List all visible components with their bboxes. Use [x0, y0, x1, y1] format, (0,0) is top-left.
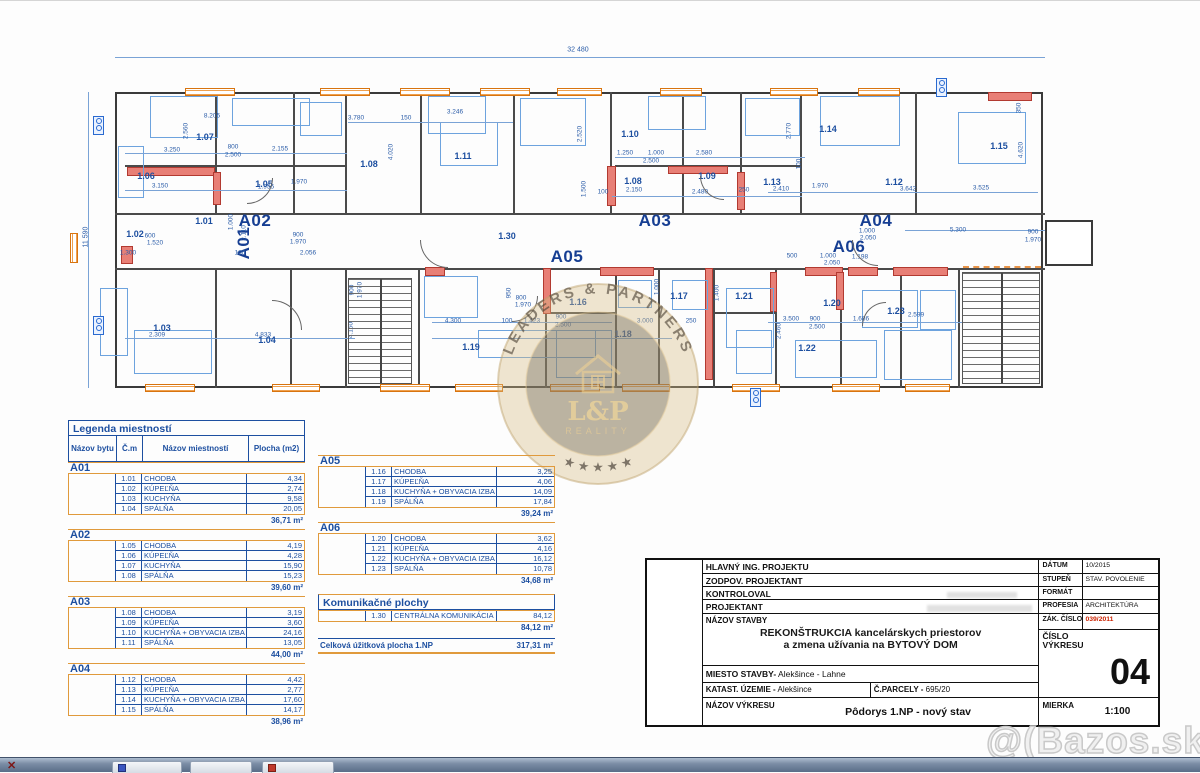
comm-total: 84,12 m² — [318, 622, 555, 636]
legend-cell: 3,19 — [247, 608, 304, 617]
legend-room-row: 1.12CHODBA4,42 — [116, 675, 304, 685]
dimension-label: 2.770 — [786, 123, 793, 139]
legend-cell: 1.22 — [366, 554, 392, 563]
tb-stupen-row: STUPEŇSTAV. POVOLENIE — [1039, 574, 1158, 587]
window-marker — [380, 384, 430, 392]
staircase — [962, 272, 1040, 384]
room-number-label: 1.15 — [990, 141, 1008, 151]
comm-row-name: CENTRÁLNA KOMUNIKÁCIA — [392, 611, 497, 621]
legend-cell: 1.21 — [366, 544, 392, 553]
legend-cell: SPÁLŇA — [142, 638, 247, 648]
legend-room-row: 1.03KUCHYŇA9,58 — [116, 494, 304, 504]
load-bearing-wall — [425, 267, 445, 276]
legend-cell: 15,90 — [247, 561, 304, 570]
legend-cell: KÚPEĽŇA — [142, 618, 247, 627]
apartment-group-label: A04 — [68, 663, 305, 674]
legend-cell: 17,60 — [247, 695, 304, 704]
legend-cell: 1.17 — [366, 477, 392, 486]
legend-cell: 14,17 — [247, 705, 304, 715]
legend-title: Legenda miestností — [68, 420, 305, 436]
room-number-label: 1.08 — [624, 176, 642, 186]
legend-groups-a01-a04: A011.01CHODBA4,341.02KÚPEĽŇA2,741.03KUCH… — [68, 462, 305, 730]
dimension-label: 3.780 — [348, 115, 364, 122]
room-number-label: 1.14 — [819, 124, 837, 134]
vent-circle — [96, 118, 102, 124]
apartment-group-label: A02 — [68, 529, 305, 540]
window-marker — [770, 88, 818, 96]
tb-parcely-label: Č.PARCELY - — [874, 685, 924, 694]
legend-cell: 1.10 — [116, 628, 142, 637]
legend-room-row: 1.20CHODBA3,62 — [366, 534, 554, 544]
grand-total-label: Celková úžitková plocha 1.NP — [320, 641, 433, 650]
window-marker — [557, 88, 602, 96]
apartment-label: A03 — [639, 211, 672, 231]
legend-cell: 20,05 — [247, 504, 304, 514]
vent-icon — [750, 388, 761, 407]
legend-cell: 9,58 — [247, 494, 304, 503]
legend-room-row: 1.07KUCHYŇA15,90 — [116, 561, 304, 571]
taskbar-button-1[interactable] — [112, 761, 182, 773]
group-total-area: 39,24 m² — [318, 508, 555, 522]
legend-cell: 1.09 — [116, 618, 142, 627]
legend-room-row: 1.17KÚPEĽŇA4,06 — [366, 477, 554, 487]
dimension-label: 3.246 — [447, 109, 463, 116]
dimension-label: 4.620 — [1018, 142, 1025, 158]
legend-cell: 1.03 — [116, 494, 142, 503]
legend-room-row: 1.06KÚPEĽŇA4,28 — [116, 551, 304, 561]
legend-header-nazov-miestnosti: Názov miestností — [143, 436, 249, 461]
comm-title: Komunikačné plochy — [318, 594, 555, 610]
legend-groups-a05-a06: A051.16CHODBA3,251.17KÚPEĽŇA4,061.18KUCH… — [318, 455, 555, 589]
furniture-item — [648, 96, 706, 130]
legend-cell: 16,12 — [497, 554, 554, 563]
dimension-label: 4.020 — [388, 144, 395, 160]
legend-cell: KÚPEĽŇA — [392, 477, 497, 486]
tb-row-zodpov: ZODPOV. PROJEKTANT — [703, 574, 1039, 587]
dimension-label: 150 — [401, 115, 412, 122]
legend-room-row: 1.10KUCHYŇA + OBYVACIA IZBA24,16 — [116, 628, 304, 638]
legend-cell: SPÁLŇA — [392, 564, 497, 574]
legend-cell: KUCHYŇA + OBYVACIA IZBA — [142, 628, 247, 637]
dimension-line — [612, 196, 802, 197]
dimension-label: 4.300 — [445, 318, 461, 325]
dimension-label: 1.000 — [859, 228, 875, 235]
furniture-item — [232, 98, 310, 126]
dimension-label: 100 — [598, 189, 609, 196]
legend-room-row: 1.05CHODBA4,19 — [116, 541, 304, 551]
legend-room-row: 1.08SPÁLŇA15,23 — [116, 571, 304, 581]
drawing-number: 04 — [1110, 651, 1150, 693]
dimension-label: 4.833 — [255, 332, 271, 339]
dimension-label: 2.050 — [824, 260, 840, 267]
entrance-annex — [1045, 220, 1093, 266]
window-marker — [400, 88, 450, 96]
window-marker — [480, 88, 530, 96]
app-icon-red — [268, 764, 276, 772]
group-total-area: 38,96 m² — [68, 716, 305, 730]
group-total-area: 44,00 m² — [68, 649, 305, 663]
legend-room-row: 1.08CHODBA3,19 — [116, 608, 304, 618]
furniture-item — [134, 330, 212, 374]
legend-header-row: Názov bytu Č.m Názov miestností Plocha (… — [68, 436, 305, 462]
dimension-line — [348, 122, 513, 123]
dimension-label: 900 — [810, 316, 821, 323]
window-marker — [70, 233, 78, 263]
legend-room-row: 1.22KUCHYŇA + OBYVACIA IZBA16,12 — [366, 554, 554, 564]
grand-total-row: Celková úžitková plocha 1.NP 317,31 m² — [318, 638, 555, 654]
comm-row: 1.30 CENTRÁLNA KOMUNIKÁCIA 84,12 — [366, 611, 554, 621]
legend-header-nazov-bytu: Názov bytu — [69, 436, 117, 461]
window-marker — [858, 88, 900, 96]
furniture-item — [424, 276, 478, 318]
legend-cell: CHODBA — [142, 541, 247, 550]
legend-table-left: Legenda miestností Názov bytu Č.m Názov … — [68, 420, 305, 730]
vent-icon — [936, 78, 947, 97]
legend-room-row: 1.23SPÁLŇA10,78 — [366, 564, 554, 574]
dimension-label: 800 — [228, 144, 239, 151]
tb-parcely-value: 695/20 — [923, 685, 950, 694]
load-bearing-wall — [213, 172, 221, 205]
legend-room-row: 1.01CHODBA4,34 — [116, 474, 304, 484]
tb-miesto-label: MIESTO STAVBY- — [706, 669, 776, 679]
legend-room-row: 1.11SPÁLŇA13,05 — [116, 638, 304, 648]
legend-cell: 3,60 — [247, 618, 304, 627]
legend-cell: KUCHYŇA + OBYVACIA IZBA — [392, 487, 497, 496]
legend-cell: 3,25 — [497, 467, 554, 476]
room-number-label: 1.01 — [195, 216, 213, 226]
dimension-label: 3.250 — [164, 147, 180, 154]
dimension-label: 350 — [1016, 103, 1023, 114]
legend-cell: 1.08 — [116, 571, 142, 581]
dimension-label: 1.000 — [228, 214, 235, 230]
dimension-label: 1.300 — [120, 250, 136, 257]
wall-segment — [513, 92, 515, 213]
legend-cell: 2,74 — [247, 484, 304, 493]
dimension-label: 2.599 — [908, 312, 924, 319]
staircase-rail — [380, 279, 382, 383]
apartment-group-label: A05 — [318, 455, 555, 466]
furniture-item — [300, 102, 342, 136]
comm-box: 1.30 CENTRÁLNA KOMUNIKÁCIA 84,12 — [318, 610, 555, 622]
legend-cell: 1.07 — [116, 561, 142, 570]
room-number-label: 1.21 — [735, 291, 753, 301]
legend-cell: 14,09 — [497, 487, 554, 496]
window-marker — [272, 384, 320, 392]
legend-cell: 1.15 — [116, 705, 142, 715]
legend-group-a01: A011.01CHODBA4,341.02KÚPEĽŇA2,741.03KUCH… — [68, 462, 305, 529]
app-icon-blue — [118, 764, 126, 772]
wall-segment — [915, 92, 917, 213]
load-bearing-wall — [988, 92, 1032, 101]
legend-cell: CHODBA — [392, 534, 497, 543]
tb-miesto-stavby: MIESTO STAVBY- Alekšince - Lahne — [703, 666, 1039, 683]
taskbar-close-icon[interactable]: ✕ — [7, 759, 16, 772]
legend-cell: KUCHYŇA + OBYVACIA IZBA — [392, 554, 497, 563]
dimension-label: 1.970 — [291, 179, 307, 186]
legend-group-box: 1.05CHODBA4,191.06KÚPEĽŇA4,281.07KUCHYŇA… — [68, 540, 305, 582]
tb-nazov-stavby: NÁZOV STAVBY REKONŠTRUKCIA kancelárskych… — [703, 614, 1039, 666]
legend-cell: CHODBA — [142, 675, 247, 684]
apartment-label: A05 — [551, 247, 584, 267]
apartment-group-label: A06 — [318, 522, 555, 533]
dimension-label: 2.155 — [272, 146, 288, 153]
legend-cell: CHODBA — [142, 474, 247, 483]
bazos-watermark: @(Bazos.sk — [986, 720, 1200, 762]
tb-row-hlavny: HLAVNÝ ING. PROJEKTU — [703, 560, 1039, 574]
dimension-label: 250 — [739, 187, 750, 194]
room-number-label: 1.22 — [798, 343, 816, 353]
legend-cell: 1.08 — [116, 608, 142, 617]
legend-room-row: 1.13KÚPEĽŇA2,77 — [116, 685, 304, 695]
legend-header-cm: Č.m — [117, 436, 143, 461]
tb-nazov-stavby-label: NÁZOV STAVBY — [703, 614, 1039, 627]
legend-group-box: 1.01CHODBA4,341.02KÚPEĽŇA2,741.03KUCHYŇA… — [68, 473, 305, 515]
staircase — [348, 278, 412, 384]
load-bearing-wall — [600, 267, 654, 276]
dimension-label: 1.970 — [290, 239, 306, 246]
group-total-area: 34,68 m² — [318, 575, 555, 589]
legend-cell: 1.18 — [366, 487, 392, 496]
tb-katast-label: KATAST. ÚZEMIE - — [706, 685, 776, 694]
dimension-label: 2.410 — [773, 186, 789, 193]
dimension-line — [115, 57, 1045, 58]
room-number-label: 1.06 — [137, 171, 155, 181]
dimension-label: 100 — [235, 250, 246, 257]
legend-cell: 24,16 — [247, 628, 304, 637]
wall-segment — [958, 268, 960, 388]
dimension-label: 500 — [787, 253, 798, 260]
legend-group-box: 1.16CHODBA3,251.17KÚPEĽŇA4,061.18KUCHYŇA… — [318, 466, 555, 508]
dimension-label: 2.500 — [809, 324, 825, 331]
legend-cell: KUCHYŇA — [142, 561, 247, 570]
wall-segment — [418, 268, 420, 388]
legend-room-row: 1.15SPÁLŇA14,17 — [116, 705, 304, 715]
room-number-label: 1.11 — [454, 151, 471, 161]
taskbar: ✕ — [0, 757, 1200, 772]
legend-cell: 1.16 — [366, 467, 392, 476]
dimension-label: 1.400 — [714, 285, 721, 301]
legend-room-row: 1.18KUCHYŇA + OBYVACIA IZBA14,09 — [366, 487, 554, 497]
dimension-label: 1.500 — [581, 181, 588, 197]
furniture-item — [920, 290, 956, 330]
dimension-label: 1.970 — [1025, 237, 1041, 244]
room-number-label: 1.30 — [498, 231, 516, 241]
tb-project-title-line2: a zmena užívania na BYTOVÝ DOM — [703, 639, 1039, 651]
window-marker — [320, 88, 370, 96]
vent-icon — [93, 116, 104, 135]
legend-cell: 3,62 — [497, 534, 554, 543]
dimension-label: 2.520 — [577, 126, 584, 142]
dimension-label: 2.500 — [225, 152, 241, 159]
grand-total-value: 317,31 m² — [517, 641, 553, 650]
legend-cell: SPÁLŇA — [142, 504, 247, 514]
legend-group-a06: A061.20CHODBA3,621.21KÚPEĽŇA4,161.22KUCH… — [318, 522, 555, 589]
legend-cell: 1.12 — [116, 675, 142, 684]
taskbar-button-3[interactable] — [262, 761, 334, 773]
legend-cell: 15,23 — [247, 571, 304, 581]
dimension-label: 1.520 — [147, 240, 163, 247]
dimension-label: 1.000 — [820, 253, 836, 260]
legend-cell: 4,19 — [247, 541, 304, 550]
vent-circle — [753, 397, 759, 403]
legend-cell: SPÁLŇA — [392, 497, 497, 507]
dimension-label: 900 — [293, 232, 304, 239]
window-marker — [832, 384, 880, 392]
legend-cell: KUCHYŇA — [142, 494, 247, 503]
legend-room-row: 1.04SPÁLŇA20,05 — [116, 504, 304, 514]
dimension-label: 2.110 — [241, 225, 248, 241]
dimension-label: 8.205 — [204, 113, 220, 120]
vent-circle — [939, 80, 945, 86]
legend-cell: 1.23 — [366, 564, 392, 574]
legend-cell: 4,28 — [247, 551, 304, 560]
tb-miesto-value: Alekšince - Lahne — [776, 669, 845, 679]
overall-width-dimension: 32 480 — [567, 47, 588, 54]
legend-room-row: 1.16CHODBA3,25 — [366, 467, 554, 477]
window-marker — [660, 88, 702, 96]
wall-segment — [420, 92, 422, 213]
room-number-label: 1.23 — [887, 306, 905, 316]
group-total-area: 39,60 m² — [68, 582, 305, 596]
dimension-label: 2.560 — [183, 123, 190, 139]
title-block: HLAVNÝ ING. PROJEKTU ZODPOV. PROJEKTANT … — [645, 558, 1160, 727]
dimension-label: 900 — [1028, 229, 1039, 236]
furniture-item — [958, 112, 1026, 164]
legend-cell: KÚPEĽŇA — [142, 551, 247, 560]
window-marker — [905, 384, 950, 392]
overall-height-dimension: 11 590 — [83, 227, 90, 248]
legend-cell: 1.20 — [366, 534, 392, 543]
wall-segment — [215, 268, 217, 388]
erased-text-smudge — [947, 592, 1017, 598]
legend-cell: 4,42 — [247, 675, 304, 684]
furniture-item — [736, 330, 772, 374]
communication-areas-table: Komunikačné plochy 1.30 CENTRÁLNA KOMUNI… — [318, 594, 555, 654]
dimension-label: 100 — [796, 159, 803, 170]
legend-room-row: 1.02KÚPEĽŇA2,74 — [116, 484, 304, 494]
load-bearing-wall — [607, 166, 616, 206]
wall-segment — [800, 92, 802, 213]
tb-cislo-vykresu: ČÍSLO VÝKRESU 04 — [1039, 630, 1158, 698]
tb-katast-value: Alekšince — [776, 685, 812, 694]
vent-circle — [939, 87, 945, 93]
taskbar-button-2[interactable] — [190, 761, 252, 773]
furniture-item — [100, 288, 128, 356]
load-bearing-wall — [893, 267, 948, 276]
tb-katast-row: KATAST. ÚZEMIE - Alekšince Č.PARCELY - 6… — [703, 683, 1039, 698]
tb-zak-cislo-row: ZÁK. ČÍSLO039/2011 — [1039, 614, 1158, 630]
legend-cell: KÚPEĽŇA — [142, 685, 247, 694]
vent-circle — [96, 318, 102, 324]
dimension-label: 3.500 — [783, 316, 799, 323]
apartment-group-label: A01 — [68, 462, 305, 473]
legend-group-box: 1.20CHODBA3,621.21KÚPEĽŇA4,161.22KUCHYŇA… — [318, 533, 555, 575]
legend-cell: 1.01 — [116, 474, 142, 483]
legend-cell: KÚPEĽŇA — [142, 484, 247, 493]
vent-circle — [96, 125, 102, 131]
dimension-label: 2.500 — [643, 158, 659, 165]
legend-cell: KUCHYŇA + OBYVACIA IZBA — [142, 695, 247, 704]
vent-icon — [93, 316, 104, 335]
legend-cell: 1.02 — [116, 484, 142, 493]
dimension-label: 2.309 — [149, 332, 165, 339]
watermark-logo-text: L&P — [567, 397, 628, 427]
legend-cell: 1.06 — [116, 551, 142, 560]
legend-cell: SPÁLŇA — [142, 571, 247, 581]
room-number-label: 1.02 — [126, 229, 144, 239]
legend-group-a03: A031.08CHODBA3,191.09KÚPEĽŇA3,601.10KUCH… — [68, 596, 305, 663]
dimension-label: 2.580 — [696, 150, 712, 157]
legend-room-row: 1.19SPÁLŇA17,84 — [366, 497, 554, 507]
dimension-label: 3.642 — [900, 186, 916, 193]
legend-cell: 1.11 — [116, 638, 142, 648]
legend-cell: 1.14 — [116, 695, 142, 704]
legend-cell: 1.13 — [116, 685, 142, 694]
tb-datum-row: DÁTUM10/2015 — [1039, 560, 1158, 574]
erased-text-smudge — [927, 605, 1032, 612]
room-number-label: 1.08 — [360, 159, 378, 169]
legend-cell: 1.19 — [366, 497, 392, 507]
room-number-label: 1.07 — [196, 132, 214, 142]
title-block-left-strip — [647, 560, 703, 725]
legend-cell: 10,78 — [497, 564, 554, 574]
legend-cell: 1.04 — [116, 504, 142, 514]
dimension-label: 3.150 — [152, 183, 168, 190]
legend-header-plocha: Plocha (m2) — [249, 436, 304, 461]
legend-group-box: 1.12CHODBA4,421.13KÚPEĽŇA2,771.14KUCHYŇA… — [68, 674, 305, 716]
legend-group-a04: A041.12CHODBA4,421.13KÚPEĽŇA2,771.14KUCH… — [68, 663, 305, 730]
vent-circle — [753, 390, 759, 396]
legend-cell: 4,34 — [247, 474, 304, 483]
legend-cell: SPÁLŇA — [142, 705, 247, 715]
dimension-label: 2.150 — [626, 187, 642, 194]
legend-cell: CHODBA — [142, 608, 247, 617]
dimension-label: 1.970 — [812, 183, 828, 190]
dashed-opening — [963, 266, 1041, 268]
load-bearing-wall — [848, 267, 878, 276]
tb-profesia-row: PROFESIAARCHITEKTÚRA — [1039, 600, 1158, 614]
dimension-label: 2.056 — [300, 250, 316, 257]
tb-cislo-label-2: VÝKRESU — [1042, 640, 1083, 650]
dimension-label: 5.300 — [950, 227, 966, 234]
vent-circle — [96, 325, 102, 331]
comm-row-area: 84,12 — [497, 611, 554, 621]
dimension-line — [905, 230, 1045, 231]
tb-format-row: FORMÁT — [1039, 587, 1158, 600]
window-marker — [185, 88, 235, 96]
tb-nazov-vykresu-label: NÁZOV VÝKRESU — [703, 698, 778, 725]
group-total-area: 36,71 m² — [68, 515, 305, 529]
legend-cell: 4,16 — [497, 544, 554, 553]
window-marker — [145, 384, 195, 392]
room-number-label: 1.20 — [823, 298, 841, 308]
comm-row-number: 1.30 — [366, 611, 392, 621]
furniture-item — [820, 96, 900, 146]
tb-project-title-line1: REKONŠTRUKCIA kancelárskych priestorov — [703, 627, 1039, 639]
dimension-label: 1.250 — [617, 150, 633, 157]
dimension-line — [125, 190, 347, 191]
legend-group-a05: A051.16CHODBA3,251.17KÚPEĽŇA4,061.18KUCH… — [318, 455, 555, 522]
legend-cell: CHODBA — [392, 467, 497, 476]
legend-cell: KÚPEĽŇA — [392, 544, 497, 553]
dimension-label: 3.525 — [973, 185, 989, 192]
legend-room-row: 1.21KÚPEĽŇA4,16 — [366, 544, 554, 554]
legend-group-box: 1.08CHODBA3,191.09KÚPEĽŇA3,601.10KUCHYŇA… — [68, 607, 305, 649]
dimension-label: 1.000 — [648, 150, 664, 157]
room-number-label: 1.19 — [462, 342, 480, 352]
legend-table-right: A051.16CHODBA3,251.17KÚPEĽŇA4,061.18KUCH… — [318, 455, 555, 654]
room-number-label: 1.10 — [621, 129, 639, 139]
